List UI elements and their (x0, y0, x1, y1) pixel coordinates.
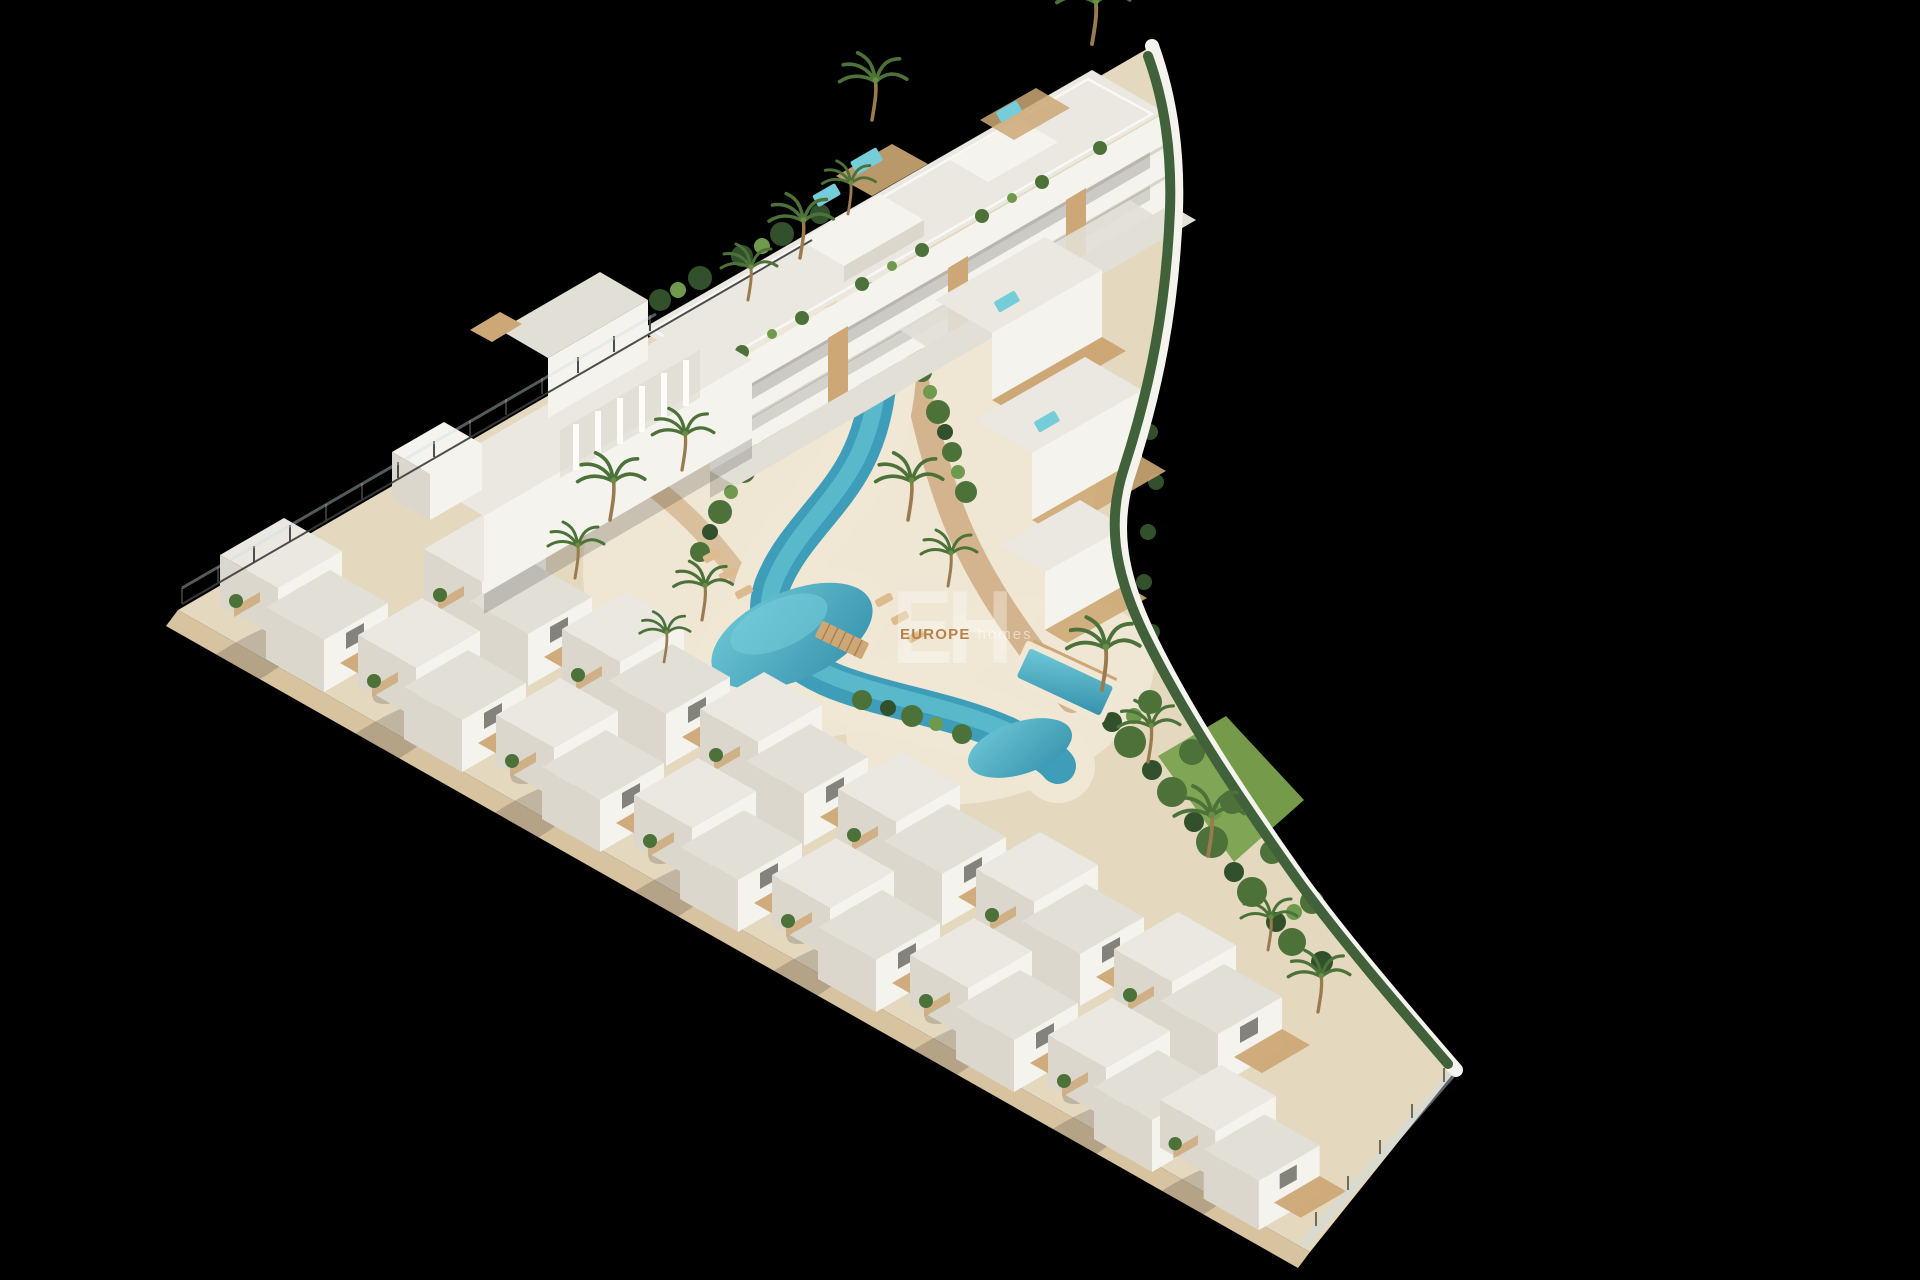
site-render (0, 0, 1920, 1280)
render-canvas: EH EUROPEhomes (0, 0, 1920, 1280)
